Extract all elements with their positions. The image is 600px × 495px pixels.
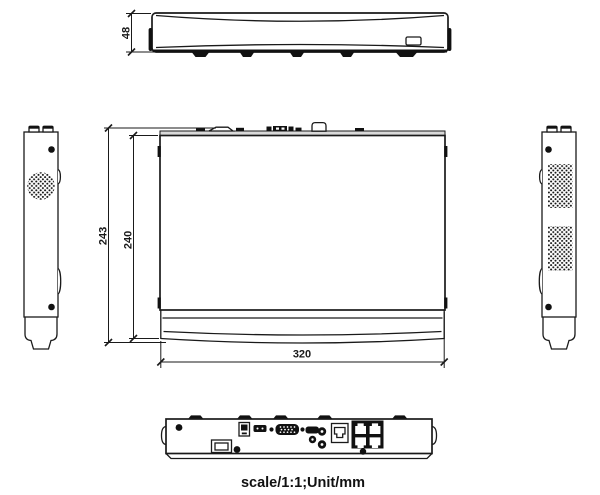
technical-drawing-page: 48 (0, 0, 600, 495)
side-tab (540, 170, 542, 185)
right-side-top-bumps (547, 126, 571, 132)
side-tab (539, 269, 542, 295)
dim-depth-243: 243 (98, 125, 217, 347)
screw (234, 446, 241, 453)
front-bottom-curve (156, 45, 444, 48)
ir-window (406, 37, 421, 45)
dim-width-320: 320 (157, 312, 447, 368)
screw (360, 448, 366, 454)
front-top-curve (156, 16, 444, 22)
screw (545, 146, 552, 153)
front-end-cap-left (149, 28, 153, 51)
top-view (158, 123, 448, 343)
left-side-view (24, 126, 61, 349)
screw (545, 304, 552, 311)
dim-label-height: 48 (121, 27, 133, 39)
usb-port (254, 425, 267, 432)
left-side-front-section (25, 317, 57, 349)
screw (48, 146, 55, 153)
screw (48, 304, 55, 311)
front-panel-strip-top (161, 310, 444, 343)
poe-rj45-block (352, 421, 384, 449)
rear-panel (166, 419, 432, 454)
vent-grille-round (27, 172, 55, 200)
side-tab (58, 170, 60, 185)
side-mount-tabs-top (158, 146, 448, 309)
ground-terminal (239, 423, 250, 437)
dim-height-48: 48 (121, 10, 154, 56)
vga-connector (269, 424, 304, 435)
dim-depth-240: 240 (123, 132, 160, 342)
front-view (149, 13, 452, 57)
front-feet (192, 53, 417, 58)
dim-label-depth-outer: 243 (98, 227, 110, 245)
rear-view (162, 415, 437, 458)
dim-label-depth-inner: 240 (123, 231, 135, 249)
left-side-body (24, 132, 58, 317)
vent-grille-lower (548, 226, 573, 271)
lan-port (332, 424, 349, 443)
screw (176, 424, 183, 431)
rear-connectors-top (196, 123, 364, 132)
hdmi-connector (306, 427, 320, 434)
power-inlet-top (312, 123, 326, 132)
vent-grille-upper (548, 164, 573, 208)
top-body (160, 136, 445, 311)
scale-caption: scale/1:1;Unit/mm (241, 475, 365, 491)
dim-label-width: 320 (293, 349, 311, 361)
right-side-view (539, 126, 576, 349)
power-inlet (212, 440, 232, 453)
left-side-top-bumps (29, 126, 53, 132)
side-tab (58, 269, 61, 295)
right-side-body (542, 132, 576, 317)
nvr-dimension-drawing: 48 (0, 0, 600, 495)
front-end-cap-right (447, 28, 451, 51)
right-side-front-section (543, 317, 575, 349)
